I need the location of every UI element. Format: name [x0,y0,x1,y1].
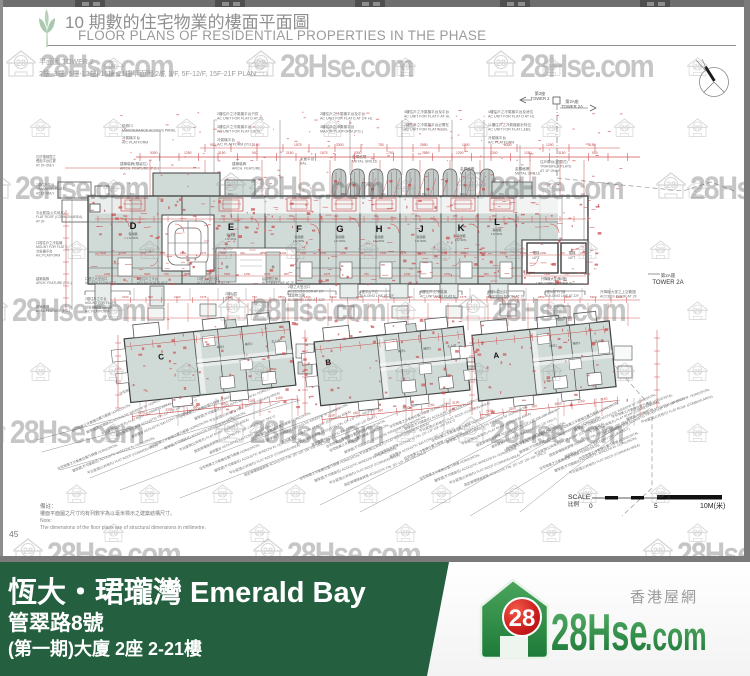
svg-text:主人房: 主人房 [447,342,456,348]
svg-text:1200: 1200 [404,272,411,276]
svg-text:28: 28 [110,368,118,375]
svg-text:TOWER 2A: TOWER 2A [652,280,683,286]
svg-text:750: 750 [240,251,245,255]
svg-text:5300: 5300 [504,143,512,147]
svg-text:1200: 1200 [462,143,470,147]
svg-text:F: F [296,224,302,235]
svg-text:10M(米): 10M(米) [700,501,725,510]
svg-text:950: 950 [453,214,458,218]
svg-text:28: 28 [548,429,556,436]
svg-text:AT 2F: AT 2F [36,219,45,223]
svg-text:備註：: 備註： [40,502,57,510]
svg-text:28: 28 [256,429,264,436]
svg-text:3300: 3300 [336,143,344,147]
svg-text:28: 28 [226,180,236,190]
svg-text:BAL.: BAL. [300,162,308,166]
svg-text:28: 28 [694,529,702,536]
svg-text:1250: 1250 [120,251,127,255]
svg-text:3150: 3150 [218,151,226,155]
svg-text:A/C PLATFORM: A/C PLATFORM [36,254,60,258]
svg-text:950: 950 [334,214,339,218]
svg-text:LIV./DIN.: LIV./DIN. [127,236,139,240]
svg-text:28: 28 [548,529,556,536]
svg-text:900: 900 [408,295,413,299]
svg-text:2150: 2150 [174,295,181,299]
svg-text:900: 900 [592,151,598,155]
svg-text:G: G [336,224,343,235]
svg-text:LIFT: LIFT [533,256,540,260]
svg-text:K: K [458,223,465,234]
svg-text:以樓住戶之冷氣機設計特位: 以樓住戶之冷氣機設計特位 [488,122,532,127]
svg-text:900: 900 [284,272,289,276]
svg-text:2樓住戶之冷氣機平台及平台: 2樓住戶之冷氣機平台及平台 [320,111,366,116]
svg-text:28: 28 [146,490,154,497]
svg-text:900: 900 [484,272,489,276]
svg-text:28: 28 [16,58,26,68]
svg-text:28: 28 [694,185,702,192]
svg-text:.com: .com [645,615,707,660]
svg-text:2850: 2850 [584,272,591,276]
svg-text:TRANSFER PLATE: TRANSFER PLATE [540,165,572,169]
svg-text:3150: 3150 [588,143,596,147]
svg-text:冷氣機平台: 冷氣機平台 [217,137,235,142]
svg-text:主人房: 主人房 [271,338,280,344]
svg-text:2150: 2150 [380,251,387,255]
svg-text:28: 28 [468,302,478,312]
svg-text:梯: 梯 [271,264,274,269]
svg-text:28: 28 [37,124,45,131]
svg-text:28: 28 [402,63,410,70]
svg-text:28: 28 [228,302,238,312]
svg-text:2850: 2850 [220,401,228,406]
svg-text:D: D [130,221,137,232]
svg-text:28: 28 [511,490,519,497]
svg-text:28: 28 [256,529,264,536]
svg-text:28: 28 [548,124,556,131]
svg-text:28: 28 [365,490,373,497]
svg-text:28: 28 [694,124,702,131]
svg-text:冷氣機平台: 冷氣機平台 [122,135,140,140]
svg-text:AT 2F ONLY: AT 2F ONLY [36,163,55,167]
svg-text:28: 28 [475,368,483,375]
svg-text:28: 28 [226,424,236,434]
svg-text:28: 28 [694,429,702,436]
svg-text:28: 28 [256,63,264,70]
svg-text:900: 900 [377,408,383,413]
svg-text:28: 28 [329,368,337,375]
svg-text:A: A [493,351,500,361]
svg-text:28: 28 [475,124,483,131]
svg-text:C: C [158,352,165,362]
svg-text:3300: 3300 [509,406,517,411]
svg-text:MAINTENANCE ACCESS PANEL: MAINTENANCE ACCESS PANEL [122,129,176,133]
svg-text:L: L [494,217,500,228]
svg-text:1575: 1575 [294,143,302,147]
svg-text:28: 28 [438,246,446,253]
svg-text:1250: 1250 [427,403,435,408]
svg-text:Note:: Note: [40,518,52,524]
svg-text:28: 28 [146,246,154,253]
svg-text:3樓住戶之冷氣機平台: 3樓住戶之冷氣機平台 [217,124,252,129]
svg-text:2樓住戶之冷氣機平台只供: 2樓住戶之冷氣機平台只供 [217,111,259,116]
svg-text:3300: 3300 [354,151,362,155]
svg-text:28: 28 [37,368,45,375]
svg-text:28: 28 [548,63,556,70]
svg-text:1200: 1200 [456,151,464,155]
svg-text:第2A座: 第2A座 [661,272,676,279]
svg-text:900: 900 [160,251,165,255]
svg-text:1250: 1250 [577,399,585,404]
svg-text:3150: 3150 [275,396,283,401]
svg-text:3150: 3150 [600,397,608,402]
svg-text:H: H [376,224,383,235]
svg-text:J: J [418,224,423,235]
svg-text:BUILDING LINE AT 2F: BUILDING LINE AT 2F [262,281,294,285]
svg-text:睡房1: 睡房1 [216,344,224,350]
svg-text:睡房1: 睡房1 [398,348,406,354]
svg-text:28: 28 [584,490,592,497]
svg-text:28: 28 [438,490,446,497]
svg-text:750: 750 [364,272,369,276]
svg-text:28: 28 [110,307,118,314]
svg-text:28: 28 [256,368,264,375]
svg-text:TOWER 2: TOWER 2 [530,96,550,101]
svg-text:950: 950 [415,214,420,218]
svg-text:950: 950 [123,214,128,218]
svg-text:2150: 2150 [434,295,441,299]
svg-text:3150: 3150 [264,272,271,276]
svg-text:28: 28 [73,490,81,497]
svg-text:5300: 5300 [150,151,158,155]
svg-text:28: 28 [402,307,410,314]
svg-text:冷氣機平台: 冷氣機平台 [488,135,506,140]
svg-text:建築裝飾(預留位): 建築裝飾(預留位) [120,161,148,166]
svg-text:900: 900 [531,404,537,409]
svg-text:3150: 3150 [340,251,347,255]
svg-text:3150: 3150 [452,400,460,405]
svg-text:LIV./DIN.: LIV./DIN. [491,232,503,236]
svg-text:28: 28 [256,307,264,314]
svg-text:900: 900 [148,295,153,299]
svg-text:5300: 5300 [224,272,231,276]
svg-text:28: 28 [496,58,506,68]
svg-text:950: 950 [289,214,294,218]
svg-text:5300: 5300 [100,251,107,255]
svg-text:900: 900 [560,251,565,255]
svg-text:28: 28 [402,124,410,131]
svg-text:28: 28 [402,429,410,436]
svg-text:2850: 2850 [554,401,562,406]
svg-text:28: 28 [657,246,665,253]
svg-text:28: 28 [219,246,227,253]
svg-text:1575: 1575 [324,272,331,276]
svg-text:750: 750 [164,272,169,276]
svg-text:2850: 2850 [420,143,428,147]
svg-text:住戶陽台(密閉式): 住戶陽台(密閉式) [540,159,568,164]
svg-text:900: 900 [210,143,216,147]
svg-text:樓面平面圖之尺寸均有列數字為以毫米標示之建築結構尺寸。: 樓面平面圖之尺寸均有列數字為以毫米標示之建築結構尺寸。 [40,510,175,517]
svg-text:750: 750 [378,143,384,147]
svg-text:28: 28 [183,368,191,375]
svg-text:升降機大堂(第2座): 升降機大堂(第2座) [541,276,567,281]
svg-text:28: 28 [509,605,536,632]
svg-text:28: 28 [653,546,663,556]
svg-text:28: 28 [694,63,702,70]
svg-text:1250: 1250 [524,151,532,155]
svg-text:2850: 2850 [422,151,430,155]
svg-text:AC UNIT FOR FLAT L&B/L: AC UNIT FOR FLAT L&B/L [488,128,531,132]
svg-text:睡房2: 睡房2 [423,345,431,351]
svg-text:28: 28 [73,246,81,253]
svg-text:950: 950 [221,214,226,218]
svg-text:BAL.: BAL. [422,192,428,196]
svg-text:LIFT: LIFT [569,256,576,260]
svg-text:MOUNT FOR FLAT E: MOUNT FOR FLAT E [137,281,168,285]
svg-text:A/C PLATFORM: A/C PLATFORM [122,141,148,145]
svg-text:2150: 2150 [104,272,111,276]
svg-text:28: 28 [466,180,476,190]
svg-text:28: 28 [548,185,556,192]
svg-text:28Hse: 28Hse [551,605,648,662]
svg-text:睡房2: 睡房2 [245,341,253,347]
svg-text:1575: 1575 [200,295,207,299]
svg-text:28: 28 [110,185,118,192]
svg-text:28: 28 [256,124,264,131]
svg-text:28: 28 [219,490,227,497]
svg-text:2150: 2150 [286,151,294,155]
svg-text:AC UNIT FOR FLAT D AT HL: AC UNIT FOR FLAT D AT HL [488,115,535,119]
svg-text:1250: 1250 [248,398,256,403]
svg-text:750: 750 [388,151,394,155]
svg-text:28: 28 [256,185,264,192]
svg-text:28: 28 [657,490,665,497]
svg-text:28: 28 [110,429,118,436]
svg-text:3150: 3150 [540,251,547,255]
svg-text:28: 28 [466,424,476,434]
svg-text:建築裝飾: 建築裝飾 [232,161,247,166]
svg-text:5300: 5300 [490,151,498,155]
svg-text:28: 28 [110,529,118,536]
svg-text:3300: 3300 [544,272,551,276]
svg-text:28: 28 [694,307,702,314]
svg-text:3150: 3150 [558,151,566,155]
svg-text:28: 28 [548,368,556,375]
svg-text:28: 28 [584,246,592,253]
svg-text:28: 28 [329,124,337,131]
svg-text:28: 28 [23,546,33,556]
svg-text:28: 28 [292,246,300,253]
svg-text:3300: 3300 [165,407,173,412]
svg-text:1575: 1575 [320,151,328,155]
svg-text:2850: 2850 [260,251,267,255]
svg-text:E: E [228,222,234,233]
svg-text:900: 900 [252,151,258,155]
svg-text:1250: 1250 [184,151,192,155]
svg-text:28: 28 [666,180,676,190]
svg-text:28: 28 [511,246,519,253]
svg-text:3300: 3300 [144,272,151,276]
svg-text:睡房2: 睡房2 [572,340,580,346]
svg-text:1250: 1250 [320,251,327,255]
svg-text:28: 28 [292,490,300,497]
svg-text:1575: 1575 [200,251,207,255]
svg-text:1250: 1250 [444,272,451,276]
svg-text:4樓住戶之冷氣機: 4樓住戶之冷氣機 [420,289,448,294]
svg-text:28: 28 [621,368,629,375]
svg-text:LIV./DIN.: LIV./DIN. [334,239,346,243]
svg-text:4樓住戶之冷氣機平台及平台: 4樓住戶之冷氣機平台及平台 [404,109,450,114]
svg-text:2150: 2150 [252,143,260,147]
svg-text:28: 28 [694,368,702,375]
svg-text:28: 28 [621,124,629,131]
svg-text:ACCESS DOOR AT 2F: ACCESS DOOR AT 2F [197,281,230,285]
svg-text:LIFT LOBBY (TOWER 2): LIFT LOBBY (TOWER 2) [536,282,571,286]
svg-text:睡房1: 睡房1 [549,342,557,348]
svg-text:LIV./DIN.: LIV./DIN. [415,239,427,243]
svg-text:28: 28 [365,246,373,253]
svg-text:28: 28 [110,124,118,131]
svg-text:28: 28 [183,124,191,131]
svg-text:1250: 1250 [244,272,251,276]
svg-text:1250: 1250 [546,143,554,147]
svg-text:28: 28 [402,368,410,375]
svg-text:28: 28 [402,529,410,536]
svg-text:28: 28 [548,307,556,314]
svg-text:28: 28 [402,185,410,192]
svg-text:750: 750 [564,272,569,276]
svg-text:A/C PLATFORM (P.G.): A/C PLATFORM (P.G.) [217,143,253,147]
